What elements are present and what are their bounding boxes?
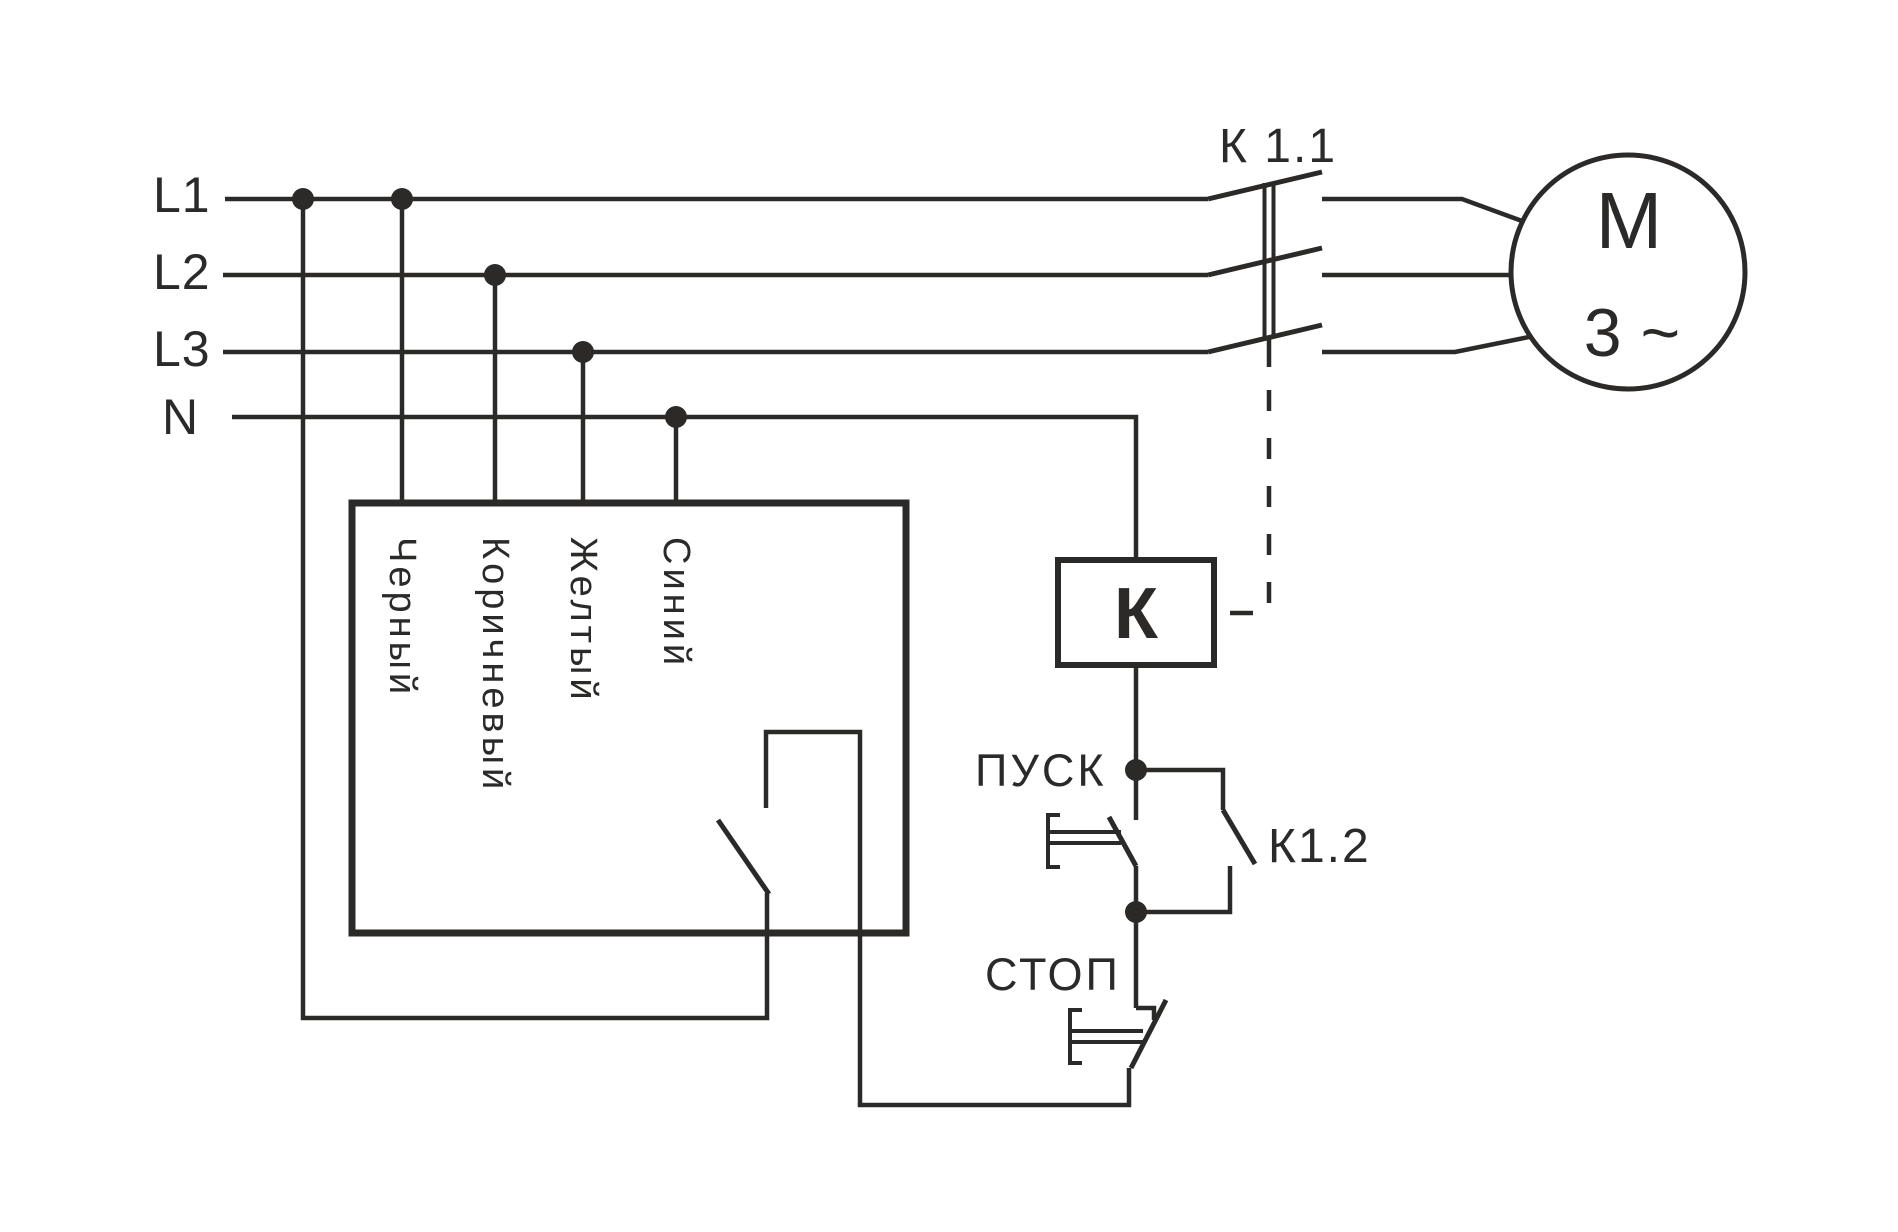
junction-dot xyxy=(391,188,413,210)
junction-dot xyxy=(292,188,314,210)
label-l1: L1 xyxy=(153,167,211,223)
contactor-k11: К 1.1 xyxy=(1208,120,1337,613)
motor-lead-l1 xyxy=(1322,199,1522,221)
aux-contact-k12: К1.2 xyxy=(1136,770,1371,912)
label-wire-yellow: Желтый xyxy=(562,537,604,704)
stop-actuator-bracket xyxy=(1070,1010,1082,1063)
controller-outline xyxy=(352,503,906,933)
motor-symbol: М xyxy=(1596,176,1663,265)
stop-button: СТОП xyxy=(985,912,1166,1068)
stop-fixed-stub xyxy=(1136,1008,1154,1020)
junction-dot xyxy=(1125,901,1147,923)
junction-dot xyxy=(484,264,506,286)
wiring-diagram: L1 L2 L3 N Черный Коричневый Желтый Сини… xyxy=(0,0,1898,1232)
motor: М 3 ~ xyxy=(1322,155,1745,389)
label-k12: К1.2 xyxy=(1268,820,1371,873)
label-wire-brown: Коричневый xyxy=(474,537,516,793)
label-n: N xyxy=(162,389,199,445)
motor-phases: 3 ~ xyxy=(1584,295,1680,371)
label-l3: L3 xyxy=(153,321,211,377)
k12-blade xyxy=(1223,810,1255,864)
label-start: ПУСК xyxy=(975,745,1107,796)
coil-label: К xyxy=(1114,574,1159,654)
label-wire-black: Черный xyxy=(381,537,423,698)
junction-dot xyxy=(572,341,594,363)
label-wire-blue: Синий xyxy=(655,537,697,669)
junction-dot xyxy=(665,406,687,428)
k12-lower-branch xyxy=(1136,866,1230,912)
controller-box: Черный Коричневый Желтый Синий xyxy=(352,503,1129,1105)
motor-lead-l3 xyxy=(1322,337,1529,352)
junction-dot xyxy=(1125,759,1147,781)
label-k11: К 1.1 xyxy=(1219,120,1337,173)
label-l2: L2 xyxy=(153,244,211,300)
k12-upper-branch xyxy=(1136,770,1223,810)
schematic-page: L1 L2 L3 N Черный Коричневый Желтый Сини… xyxy=(0,0,1898,1232)
contact-blade xyxy=(718,820,769,894)
start-button: ПУСК xyxy=(975,745,1136,912)
label-stop: СТОП xyxy=(985,949,1121,1000)
